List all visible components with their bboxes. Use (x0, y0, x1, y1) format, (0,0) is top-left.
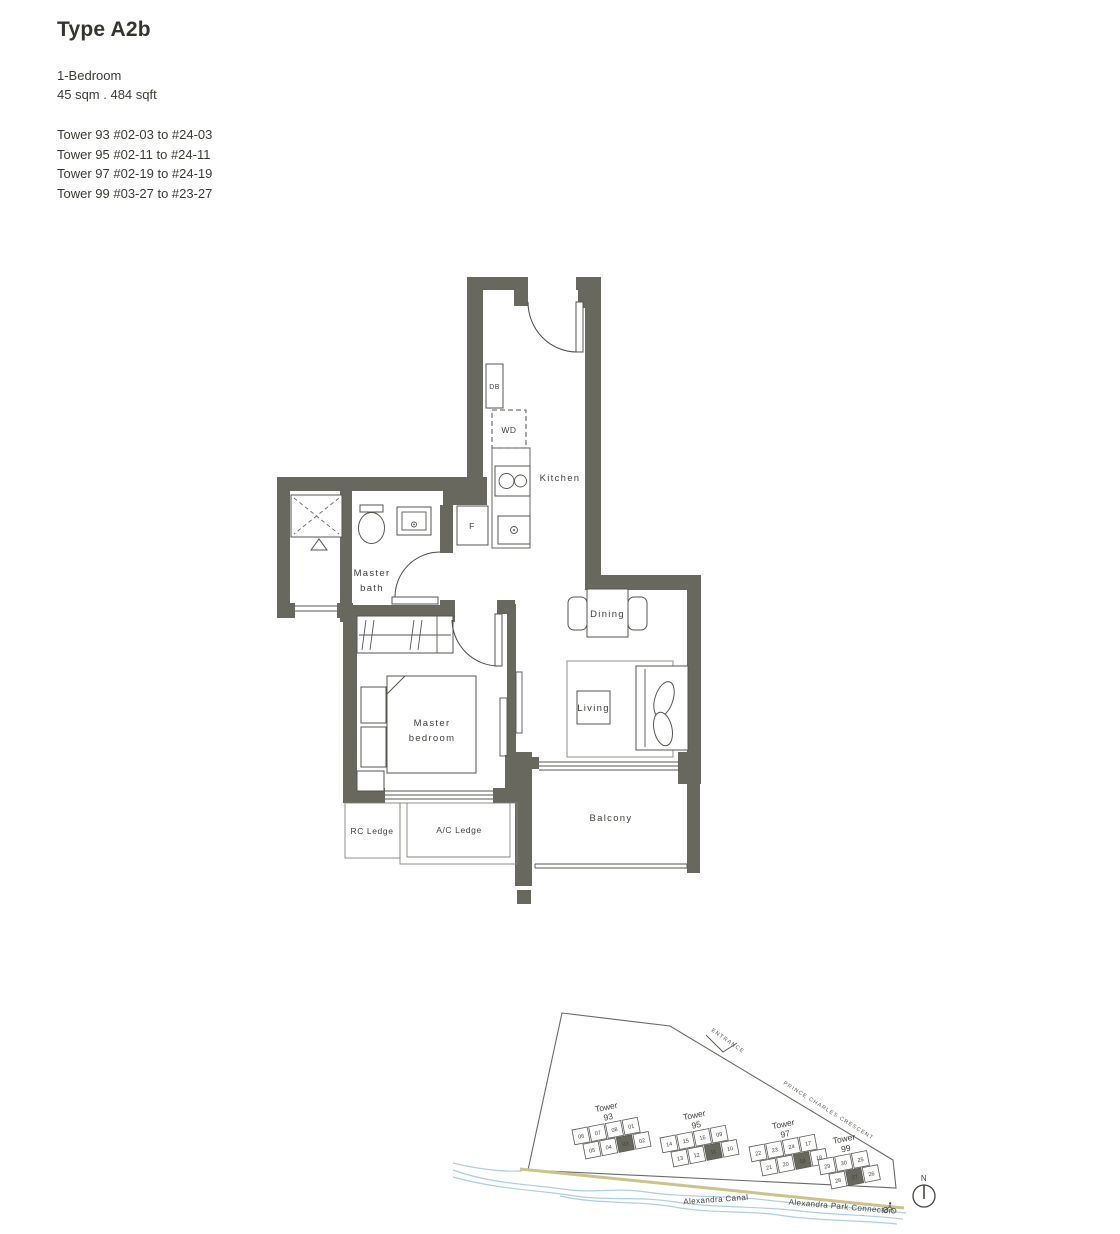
canal-label: Alexandra Canal (683, 1193, 749, 1207)
tower-unit-number: 11 (710, 1149, 717, 1156)
site-tower-93: 0607080105040302Tower93 (568, 1095, 651, 1160)
entrance-label: ENTRANCE (710, 1028, 745, 1055)
tower-unit-number: 28 (835, 1178, 842, 1185)
sofa (636, 666, 688, 750)
wardrobe (357, 616, 453, 653)
site-tower-97: 2223241721201918Tower97 (745, 1112, 828, 1177)
tower-unit-number: 26 (868, 1171, 875, 1178)
tower-unit-number: 23 (771, 1147, 778, 1154)
tower-unit-number: 10 (727, 1146, 734, 1153)
bedroom-door (452, 614, 502, 666)
tower-unit-number: 13 (677, 1156, 684, 1163)
vanity-sink (397, 507, 431, 535)
nightstand (361, 727, 386, 767)
master-bath-label-1: Master (354, 568, 391, 579)
tower-unit-number: 24 (788, 1144, 795, 1151)
tower-unit-number: 27 (851, 1174, 858, 1181)
master-bedroom-label-1: Master (414, 718, 451, 729)
tower-unit-number: 22 (755, 1151, 762, 1158)
fridge-label: F (469, 521, 475, 531)
dining-label: Dining (590, 609, 625, 620)
shower (291, 495, 342, 537)
site-tower-95: 1415160913121110Tower95 (656, 1103, 739, 1168)
tower-unit-number: 14 (666, 1142, 673, 1149)
kitchen-label: Kitchen (540, 473, 581, 484)
tower-number-label: 93 (603, 1111, 614, 1123)
tower-unit-number: 06 (578, 1134, 585, 1141)
floorplan-page: Type A2b 1-Bedroom 45 sqm . 484 sqft Tow… (0, 0, 1120, 1234)
tower-unit-number: 02 (639, 1138, 646, 1145)
tower-unit-number: 03 (622, 1141, 629, 1148)
db-label: DB (489, 384, 500, 391)
tower-unit-number: 19 (799, 1158, 806, 1165)
bedroom-bench (357, 771, 384, 791)
living-label: Living (577, 703, 610, 714)
tower-unit-number: 21 (766, 1165, 773, 1172)
balcony-label: Balcony (590, 813, 633, 824)
ledges-balcony: RC Ledge A/C Ledge Balcony (345, 803, 632, 864)
shaft-triangle-icon (311, 539, 327, 550)
tower-unit-number: 04 (605, 1144, 612, 1151)
tower-unit-number: 16 (699, 1135, 706, 1142)
tower-number-label: 99 (840, 1143, 851, 1155)
tower-unit-number: 15 (682, 1138, 689, 1145)
nightstand (361, 687, 386, 723)
entry-door (528, 302, 583, 352)
rc-ledge-label: RC Ledge (350, 826, 393, 836)
floorplan-canvas: DB WD F Kitchen (0, 0, 1120, 1234)
tower-unit-number: 07 (594, 1130, 601, 1137)
tv-console (516, 672, 522, 733)
tower-unit-number: 20 (782, 1161, 789, 1168)
wd-label: WD (501, 425, 516, 435)
master-bath-label-2: bath (360, 583, 384, 594)
tower-unit-number: 09 (716, 1132, 723, 1139)
floorplan-drawing: DB WD F Kitchen (277, 277, 701, 904)
tower-unit-number: 05 (589, 1148, 596, 1155)
tower-unit-number: 12 (693, 1152, 700, 1159)
kitchen-sink (498, 516, 530, 544)
road-label: PRINCE CHARLES CRESCENT (782, 1081, 875, 1142)
tower-unit-number: 30 (840, 1160, 847, 1167)
bedroom-wall-panel (500, 698, 507, 756)
tower-unit-number: 01 (628, 1124, 635, 1131)
tower-number-label: 95 (691, 1119, 702, 1131)
bath-door (392, 552, 440, 604)
master-bedroom-label-2: bedroom (409, 733, 456, 744)
tower-unit-number: 08 (611, 1127, 618, 1134)
living-dining: Dining Living (516, 589, 688, 757)
ac-ledge-label: A/C Ledge (436, 825, 482, 835)
tower-number-label: 97 (780, 1128, 791, 1140)
tower-unit-number: 25 (857, 1157, 864, 1164)
tower-unit-number: 17 (805, 1141, 812, 1148)
north-label: N (921, 1174, 927, 1183)
north-arrow: N (913, 1174, 935, 1207)
hob (495, 466, 530, 496)
tower-unit-number: 29 (824, 1164, 831, 1171)
master-bath: Master bath (291, 495, 440, 604)
master-bedroom: Master bedroom (357, 614, 507, 791)
toilet (359, 505, 385, 544)
site-plan: ENTRANCE PRINCE CHARLES CRESCENT 0607080… (453, 1013, 935, 1224)
